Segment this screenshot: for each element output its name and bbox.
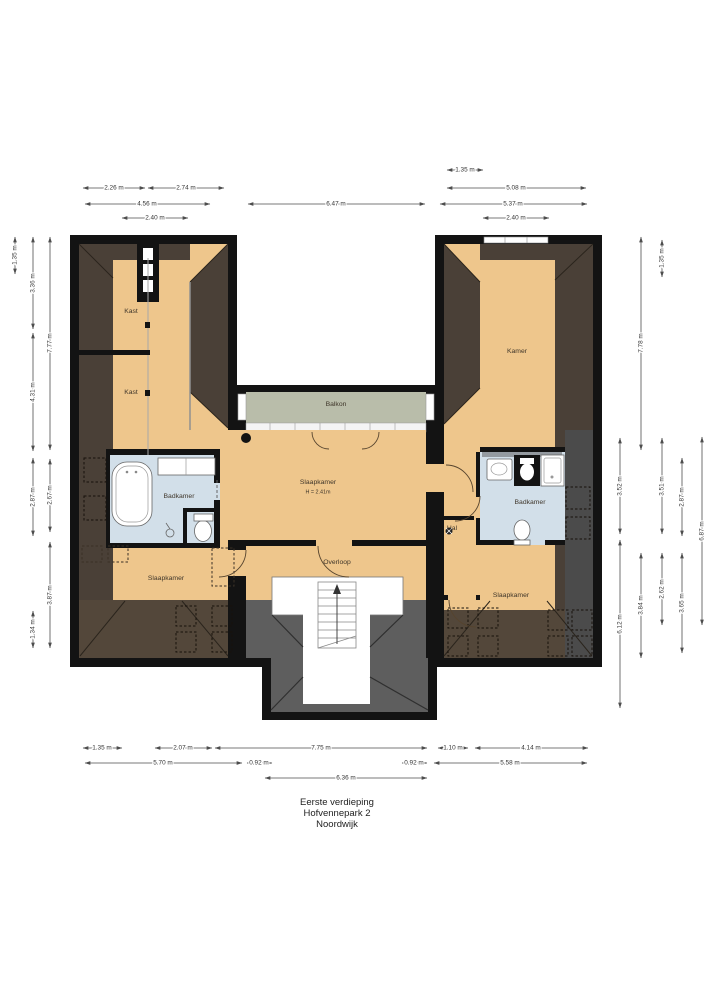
dim-label: 2.26 m <box>104 185 124 192</box>
dim-label: 3.51 m <box>659 476 666 496</box>
dim-label: 0.92 m <box>404 760 424 767</box>
balcony-side-window-left <box>238 394 246 420</box>
room-label-overloop: Overloop <box>323 559 351 566</box>
dim-label: 4.31 m <box>30 382 37 402</box>
room-label-hal: Hal <box>447 525 458 532</box>
right-roof-gray <box>565 430 593 658</box>
dim-label: 3.65 m <box>679 593 686 613</box>
kamer-window <box>484 237 548 243</box>
room-label-balkon: Balkon <box>326 401 347 408</box>
room-label-slaapkamer-height: H = 2.41m <box>305 489 331 495</box>
dimensions-top: 2.26 m 2.74 m 4.56 m 2.40 m 6.47 m 1.35 … <box>83 167 587 222</box>
dim-label: 1.35 m <box>659 248 666 268</box>
dim-label: 2.87 m <box>679 487 686 507</box>
dim-label: 7.78 m <box>638 333 645 353</box>
room-label-slaapkamer-left: Slaapkamer <box>148 575 185 582</box>
dim-label: 0.92 m <box>249 760 269 767</box>
counter <box>158 458 215 475</box>
dim-label: 5.37 m <box>503 201 523 208</box>
dim-label: 1.35 m <box>12 245 19 265</box>
room-label-badkamer-right: Badkamer <box>515 499 547 506</box>
dim-label: 3.36 m <box>30 273 37 293</box>
dim-label: 4.14 m <box>521 745 541 752</box>
dim-label: 2.62 m <box>659 579 666 599</box>
toilet <box>195 521 212 542</box>
dim-label: 3.84 m <box>638 595 645 615</box>
dimensions-right: 7.78 m 1.35 m 3.52 m 3.51 m 2.87 m 6.87 … <box>617 237 706 708</box>
title-address: Hofvennepark 2 <box>237 808 437 819</box>
toilet-2 <box>514 520 530 540</box>
dim-label: 1.10 m <box>443 745 463 752</box>
dim-label: 5.70 m <box>153 760 173 767</box>
dimensions-bottom: 1.35 m 2.07 m 7.75 m 1.10 m 4.14 m 5.70 … <box>83 745 588 782</box>
dim-label: 6.36 m <box>336 775 356 782</box>
dim-label: 1.35 m <box>92 745 112 752</box>
dim-label: 2.40 m <box>145 215 165 222</box>
dim-label: 3.87 m <box>47 585 54 605</box>
dim-label: 2.07 m <box>173 745 193 752</box>
floor-plan-svg: Kast Kast Kamer Balkon Slaapkamer H = 2.… <box>0 0 707 1000</box>
dim-label: 3.52 m <box>617 476 624 496</box>
dim-label: 6.87 m <box>699 521 706 541</box>
plan-title: Eerste verdieping Hofvennepark 2 Noordwi… <box>237 797 437 830</box>
dim-label: 5.08 m <box>506 185 526 192</box>
dim-label: 6.12 m <box>617 614 624 634</box>
toilet <box>520 464 534 481</box>
balcony-side-window-right <box>426 394 434 420</box>
dim-label: 7.77 m <box>47 333 54 353</box>
dim-label: 1.34 m <box>30 619 37 639</box>
dim-label: 2.74 m <box>176 185 196 192</box>
title-city: Noordwijk <box>237 819 437 830</box>
room-label-kast-mid: Kast <box>124 389 138 396</box>
room-label-slaapkamer-right: Slaapkamer <box>493 592 530 599</box>
balcony <box>238 392 434 432</box>
floorplan-page: Kast Kast Kamer Balkon Slaapkamer H = 2.… <box>0 0 707 1000</box>
dim-label: 2.67 m <box>47 485 54 505</box>
room-label-kast-top: Kast <box>124 308 138 315</box>
dimensions-left: 1.35 m 3.36 m 7.77 m 4.31 m 2.87 m 2.67 … <box>12 237 54 648</box>
room-label-kamer: Kamer <box>507 348 528 355</box>
room-label-slaapkamer-center: Slaapkamer <box>300 479 337 486</box>
dim-label: 5.58 m <box>500 760 520 767</box>
dim-label: 7.75 m <box>311 745 331 752</box>
title-floor-name: Eerste verdieping <box>237 797 437 808</box>
room-label-badkamer-left: Badkamer <box>164 493 196 500</box>
dim-label: 6.47 m <box>326 201 346 208</box>
dim-label: 4.56 m <box>137 201 157 208</box>
shower <box>541 455 564 486</box>
dim-label: 1.35 m <box>455 167 475 174</box>
dim-label: 2.87 m <box>30 487 37 507</box>
dim-label: 2.40 m <box>506 215 526 222</box>
column-dot <box>241 433 251 443</box>
